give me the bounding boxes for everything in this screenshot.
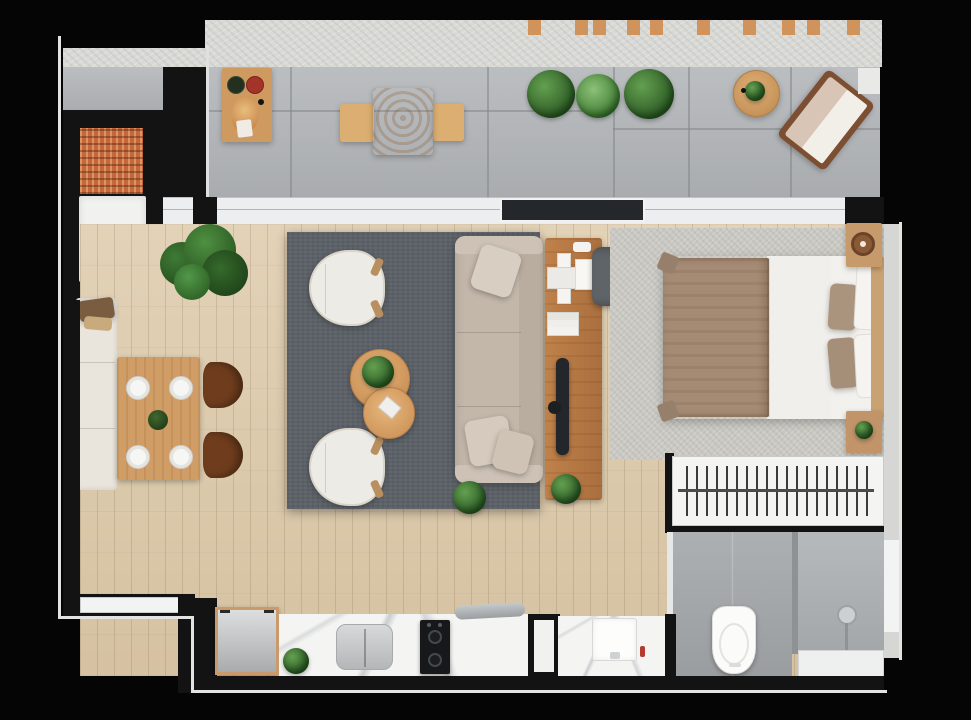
floor-plant (453, 481, 486, 514)
toilet (712, 606, 756, 674)
window-east (884, 540, 899, 632)
napkin (236, 119, 253, 138)
bench-seam (78, 428, 115, 429)
sofa-seam (457, 332, 521, 333)
tile-grout (487, 67, 489, 198)
pergola-beam (697, 20, 710, 35)
fridge-handle (264, 610, 274, 613)
bathroom-door-leaf (534, 620, 554, 672)
bar-bench-left (340, 104, 374, 142)
shower-floor (798, 532, 884, 652)
serving-board (222, 68, 272, 142)
fridge-handle (220, 610, 230, 613)
planter-plant (527, 70, 575, 118)
toilet-flush-button (729, 663, 741, 667)
bed-mattress (767, 256, 833, 419)
speaker (548, 401, 561, 414)
plate (126, 445, 150, 469)
decor-tray-dot (860, 241, 866, 247)
shower-ledge (798, 650, 884, 678)
armchair-lower (309, 428, 385, 506)
shower-head (837, 605, 857, 625)
kitchen-wall-chunk (193, 598, 217, 678)
cooktop (420, 620, 450, 674)
vanity-faucet (610, 652, 620, 659)
book-stack (547, 312, 579, 336)
wall-west (63, 300, 80, 596)
terrace-floor-nook (63, 67, 163, 112)
pergola-beam (743, 20, 756, 35)
trim-step (191, 616, 194, 693)
shower-divider (792, 532, 798, 654)
burner (428, 630, 442, 644)
pergola-beam (782, 20, 795, 35)
tile-grout (688, 67, 690, 198)
closet-rail (678, 489, 874, 492)
pergola-beam (650, 20, 663, 35)
window-bottom-left (80, 597, 183, 613)
sofa-seam (457, 406, 521, 407)
double-bed (663, 256, 884, 419)
round-mat-plant (745, 81, 765, 101)
nightstand-lower (846, 411, 882, 453)
armchair-seam (325, 443, 326, 493)
cup (741, 88, 746, 93)
dining-table (117, 357, 200, 480)
nightstand-upper (846, 223, 882, 267)
duvet-fold (767, 258, 770, 417)
monstera-leaf (174, 264, 210, 300)
burner (428, 653, 442, 667)
pergola-beam (593, 20, 606, 35)
refrigerator (215, 607, 279, 675)
brick-grill (80, 128, 143, 194)
trim-west (58, 36, 61, 618)
plate (126, 376, 150, 400)
bench-pillow (83, 316, 112, 331)
small-bowl (258, 99, 264, 105)
coffee-table-plant (362, 356, 394, 388)
trim-southwest (58, 616, 194, 619)
tile-grout (290, 67, 292, 198)
monstera-plant (160, 224, 250, 302)
console-plant (551, 474, 581, 504)
soap-dispenser (640, 646, 645, 657)
trim-south (191, 690, 887, 693)
wall-segment (193, 197, 217, 224)
floorplan-stage (0, 0, 971, 720)
planter-plant (624, 69, 674, 119)
wall-segment (845, 197, 884, 224)
toilet-bowl (719, 623, 749, 665)
kitchen-counter (279, 614, 528, 678)
red-plate (246, 76, 264, 94)
pergola-beam (847, 20, 860, 35)
wall-edge-sliver (206, 46, 209, 198)
bench-seam (78, 362, 115, 363)
pergola-beam (807, 20, 820, 35)
armchair-upper (309, 250, 385, 326)
bed-blanket (663, 258, 769, 417)
centerpiece-plant (148, 410, 168, 430)
planter-plant (576, 74, 620, 118)
plate (169, 376, 193, 400)
pergola-beam (575, 20, 588, 35)
concrete-parapet-left (63, 48, 209, 67)
bar-bench-right (433, 104, 464, 141)
monstera-leaf (202, 250, 248, 296)
cooktop-knob (427, 623, 431, 627)
plate (169, 445, 193, 469)
kitchen-sink (336, 624, 393, 670)
nightstand-plant (855, 421, 873, 439)
sink-divider (364, 629, 366, 667)
dark-sliding-panel (500, 198, 645, 222)
headboard (871, 256, 884, 419)
tray (573, 242, 591, 252)
pergola-beam (627, 20, 640, 35)
cooktop-knob (438, 623, 442, 627)
sofa (455, 236, 543, 483)
shower-arm (845, 623, 848, 651)
trim-east (899, 222, 902, 660)
counter-plant (283, 648, 309, 674)
armchair-seam (325, 264, 326, 314)
wall-terrace-divider (163, 67, 209, 198)
vanity-wall-right (665, 614, 676, 678)
bar-table (373, 88, 433, 155)
dark-plate (227, 76, 245, 94)
terrace-column (858, 68, 880, 94)
pergola-beam (528, 20, 541, 35)
concrete-parapet (205, 20, 882, 67)
